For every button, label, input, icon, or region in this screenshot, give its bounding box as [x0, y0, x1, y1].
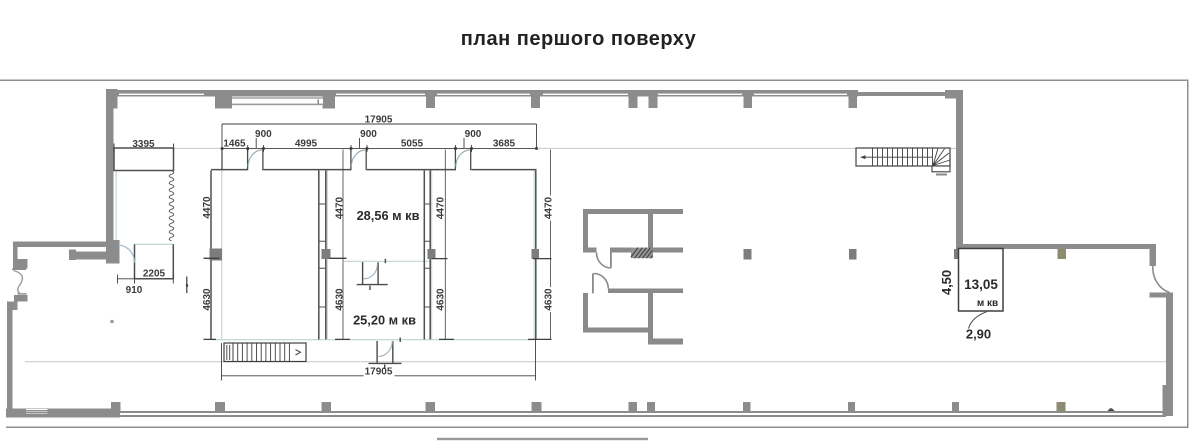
- svg-text:17905: 17905: [365, 115, 393, 126]
- svg-text:2,90: 2,90: [966, 327, 991, 342]
- svg-text:4470: 4470: [543, 196, 554, 219]
- svg-text:1465: 1465: [223, 139, 246, 150]
- svg-text:5055: 5055: [401, 139, 424, 150]
- svg-text:4470: 4470: [335, 196, 346, 219]
- svg-text:13,05: 13,05: [964, 277, 998, 292]
- svg-text:4470: 4470: [435, 196, 446, 219]
- svg-text:м кв: м кв: [977, 298, 998, 309]
- svg-text:3685: 3685: [493, 139, 516, 150]
- svg-text:25,20 м кв: 25,20 м кв: [353, 313, 416, 328]
- svg-text:3395: 3395: [132, 139, 155, 150]
- svg-text:4630: 4630: [335, 288, 346, 311]
- svg-text:28,56 м кв: 28,56 м кв: [357, 208, 420, 223]
- svg-text:2205: 2205: [143, 268, 166, 279]
- svg-text:4470: 4470: [202, 196, 213, 219]
- svg-text:4995: 4995: [295, 139, 318, 150]
- svg-text:4630: 4630: [543, 288, 554, 311]
- svg-text:910: 910: [126, 285, 143, 296]
- svg-text:17905: 17905: [365, 367, 393, 378]
- svg-text:900: 900: [360, 129, 377, 140]
- svg-text:900: 900: [255, 129, 272, 140]
- svg-text:4630: 4630: [202, 288, 213, 311]
- svg-text:4,50: 4,50: [939, 270, 954, 295]
- svg-text:4630: 4630: [435, 288, 446, 311]
- svg-text:900: 900: [465, 129, 482, 140]
